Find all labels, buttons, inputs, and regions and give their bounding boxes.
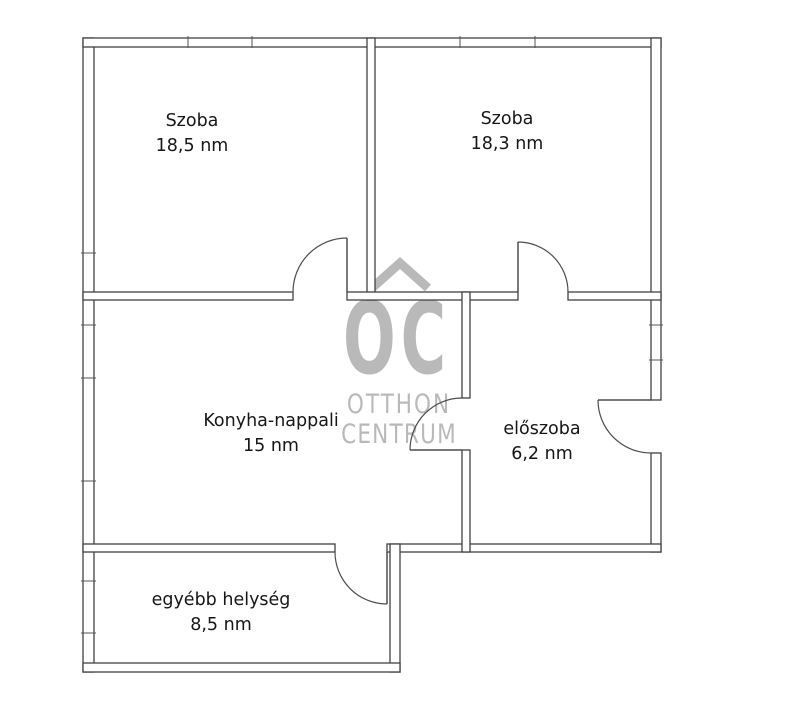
room-label-szoba-1: Szoba 18,5 nm [156, 109, 229, 159]
room-name: előszoba [503, 417, 580, 442]
room-name: Szoba [156, 109, 229, 134]
wall-kitchen-hall-upper [462, 292, 470, 398]
door-swing-arc [598, 400, 651, 453]
wall-between-bedrooms [367, 38, 375, 300]
door-swing-arc [293, 238, 347, 292]
room-label-egyebb-helyseg: egyébb helység 8,5 nm [152, 588, 291, 638]
watermark-brand-line1: OTTHON [347, 388, 451, 420]
room-name: Konyha-nappali [203, 409, 338, 434]
room-area: 15 nm [203, 434, 338, 459]
exterior-wall-right-lower [651, 453, 661, 552]
wall-bottom-band-left [83, 544, 335, 552]
exterior-wall-right-upper [651, 38, 661, 400]
door-entrance [598, 400, 651, 453]
room-area: 8,5 nm [152, 613, 291, 638]
room-name: egyébb helység [152, 588, 291, 613]
wall-bottom-band-right [387, 544, 661, 552]
room-area: 18,5 nm [156, 134, 229, 159]
door-swing-arc [518, 242, 568, 292]
door-szoba-18-3 [518, 242, 568, 292]
wall-kitchen-hall-lower [462, 450, 470, 552]
door-szoba-18-5 [293, 238, 347, 292]
room-area: 6,2 nm [503, 442, 580, 467]
room-label-eloszoba: előszoba 6,2 nm [503, 417, 580, 467]
room-label-szoba-2: Szoba 18,3 nm [471, 107, 544, 157]
exterior-wall-left [83, 38, 94, 672]
wall-mid-center-segment [347, 292, 518, 300]
floor-plan: OC OTTHON CENTRUM [0, 0, 800, 709]
floor-plan-drawing: OC OTTHON CENTRUM [0, 0, 800, 709]
annex-wall-bottom [83, 663, 400, 672]
room-name: Szoba [471, 107, 544, 132]
annex-wall-right [390, 544, 400, 672]
door-swing-arc [335, 552, 387, 604]
wall-mid-right-segment [568, 292, 661, 300]
door-annex [335, 552, 387, 604]
wall-mid-left-segment [83, 292, 293, 300]
room-label-konyha-nappali: Konyha-nappali 15 nm [203, 409, 338, 459]
room-area: 18,3 nm [471, 132, 544, 157]
watermark-brand-line2: CENTRUM [341, 418, 457, 450]
watermark: OC OTTHON CENTRUM [341, 263, 457, 450]
